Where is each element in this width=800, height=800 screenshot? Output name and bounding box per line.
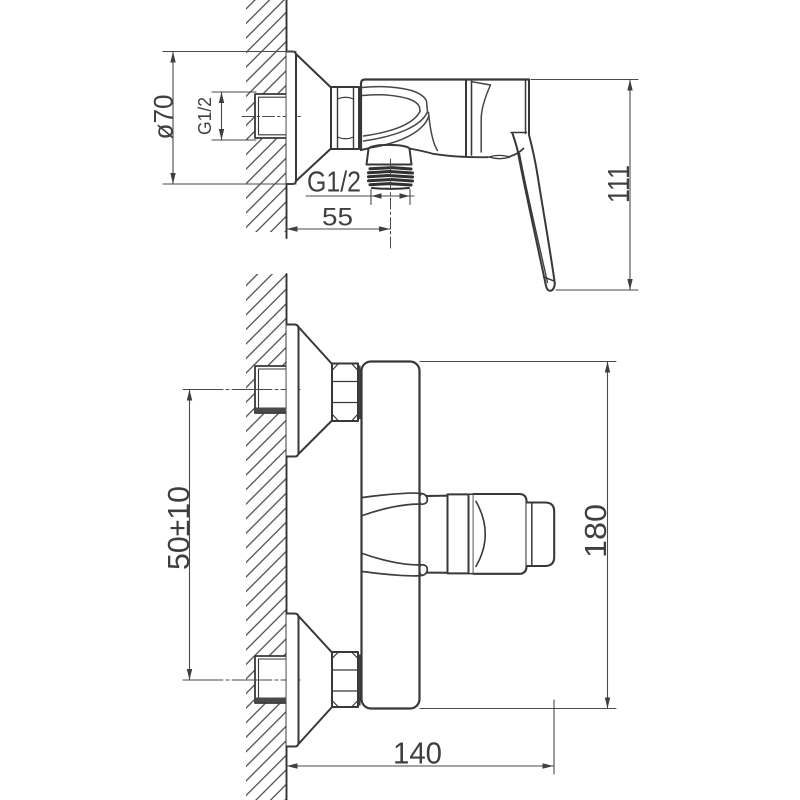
svg-text:140: 140 [393, 736, 442, 771]
svg-text:50±10: 50±10 [161, 486, 196, 570]
svg-text:ø70: ø70 [149, 95, 179, 140]
svg-text:G1/2: G1/2 [307, 167, 361, 199]
svg-text:G1/2: G1/2 [195, 97, 215, 135]
svg-text:180: 180 [578, 504, 613, 558]
svg-text:111: 111 [601, 165, 636, 203]
svg-text:55: 55 [322, 204, 353, 232]
